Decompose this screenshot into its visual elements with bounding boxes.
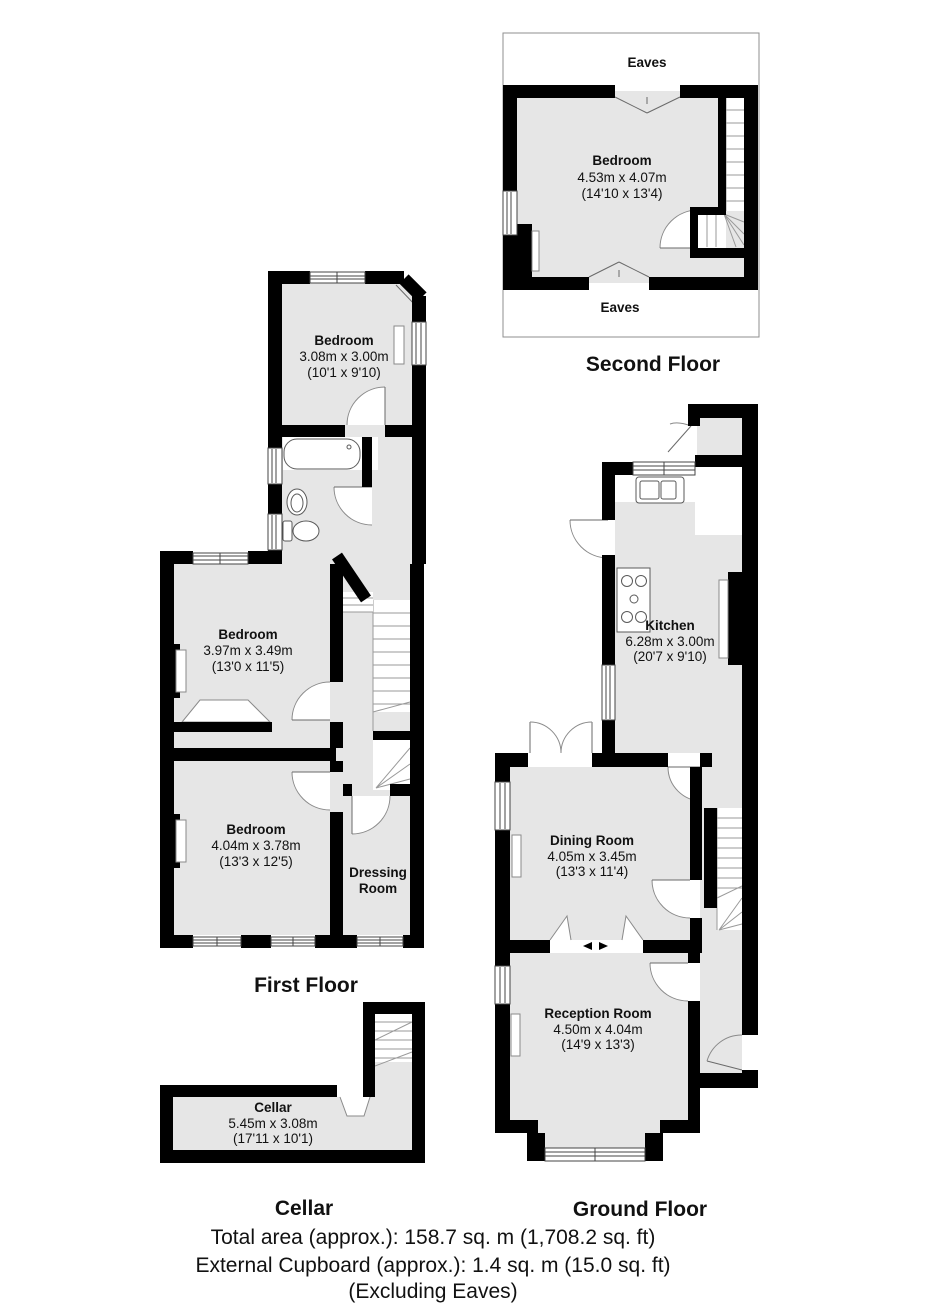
alcove-niche bbox=[394, 326, 404, 364]
wall bbox=[680, 85, 758, 98]
window bbox=[503, 191, 517, 235]
alcove-niche bbox=[176, 650, 186, 692]
hob-burner bbox=[630, 595, 638, 603]
wall bbox=[343, 784, 352, 796]
wall bbox=[728, 572, 742, 665]
room-label-bedroom-top: Bedroom bbox=[314, 333, 373, 348]
room-metric: 4.53m x 4.07m bbox=[577, 170, 666, 185]
room-imperial: (14'9 x 13'3) bbox=[561, 1037, 634, 1052]
sink-bowl bbox=[640, 481, 659, 499]
toilet-cistern bbox=[283, 521, 292, 541]
room-label-dressing-1: Dressing bbox=[349, 865, 407, 880]
wall bbox=[495, 753, 510, 940]
second-floor-plan: Eaves Eaves Bedroom 4.53m x 4.07m (14'10… bbox=[503, 33, 759, 376]
wall bbox=[315, 935, 357, 948]
wall bbox=[649, 277, 758, 290]
room-imperial: (13'3 x 11'4) bbox=[556, 864, 628, 879]
room-label-dressing-2: Room bbox=[359, 881, 397, 896]
sink-bowl bbox=[661, 481, 676, 499]
wall bbox=[700, 753, 712, 767]
external-cupboard-text: External Cupboard (approx.): 1.4 sq. m (… bbox=[195, 1254, 670, 1277]
cellar-plan: Cellar 5.45m x 3.08m (17'11 x 10'1) Cell… bbox=[160, 1002, 425, 1220]
floorplan-page: Eaves Eaves Bedroom 4.53m x 4.07m (14'10… bbox=[0, 0, 940, 1308]
wall bbox=[690, 918, 702, 940]
wall bbox=[503, 85, 517, 191]
hob-burner bbox=[636, 576, 647, 587]
window bbox=[495, 782, 510, 830]
stairwell bbox=[373, 600, 410, 712]
ground-floor-plan: Kitchen 6.28m x 3.00m (20'7 x 9'10) Dini… bbox=[495, 404, 758, 1221]
room-imperial: (10'1 x 9'10) bbox=[307, 365, 380, 380]
cellar-title: Cellar bbox=[275, 1197, 333, 1220]
wall bbox=[503, 277, 589, 290]
bath-tap bbox=[347, 445, 351, 449]
room-imperial: (17'11 x 10'1) bbox=[233, 1131, 313, 1146]
room-metric: 3.97m x 3.49m bbox=[203, 643, 292, 658]
wall bbox=[718, 97, 726, 215]
room-label-cellar: Cellar bbox=[254, 1100, 292, 1115]
room-metric: 4.05m x 3.45m bbox=[547, 849, 636, 864]
wall bbox=[385, 425, 412, 437]
french-door-arcs bbox=[530, 722, 592, 753]
wall bbox=[373, 731, 410, 740]
wall bbox=[160, 1085, 337, 1097]
room-label-dining: Dining Room bbox=[550, 833, 634, 848]
second-floor-title: Second Floor bbox=[586, 353, 720, 376]
stair-landing bbox=[698, 213, 726, 248]
stairwell bbox=[726, 97, 744, 211]
wall bbox=[527, 1133, 545, 1161]
wall bbox=[248, 551, 282, 564]
bay-floor bbox=[538, 1120, 660, 1148]
wall bbox=[643, 940, 702, 953]
door-swing bbox=[570, 520, 608, 558]
room-label-kitchen: Kitchen bbox=[645, 618, 695, 633]
porch-door-leaf bbox=[668, 426, 691, 452]
room-imperial: (14'10 x 13'4) bbox=[582, 186, 663, 201]
toilet bbox=[293, 521, 319, 541]
room-label-bedroom-middle: Bedroom bbox=[218, 627, 277, 642]
hob-burner bbox=[622, 576, 633, 587]
wall bbox=[160, 551, 174, 948]
first-floor-title: First Floor bbox=[254, 974, 358, 997]
wall bbox=[330, 722, 343, 748]
floorplan-drawing: Eaves Eaves Bedroom 4.53m x 4.07m (14'10… bbox=[0, 0, 940, 1308]
wall bbox=[645, 1133, 663, 1161]
wall bbox=[282, 425, 345, 437]
wall bbox=[704, 808, 717, 908]
wall bbox=[412, 296, 426, 322]
sink-basin bbox=[291, 494, 303, 512]
wall bbox=[602, 462, 615, 520]
alcove-niche bbox=[512, 835, 521, 877]
window bbox=[602, 665, 615, 720]
window bbox=[268, 514, 282, 550]
wall bbox=[690, 248, 758, 258]
wall bbox=[742, 418, 758, 1035]
bathtub bbox=[284, 439, 360, 469]
wall bbox=[241, 935, 271, 948]
footer-summary: Total area (approx.): 158.7 sq. m (1,708… bbox=[195, 1226, 670, 1303]
wall bbox=[688, 404, 700, 426]
wall bbox=[690, 767, 702, 880]
wall bbox=[690, 207, 698, 250]
total-area-text: Total area (approx.): 158.7 sq. m (1,708… bbox=[211, 1226, 656, 1249]
wall bbox=[412, 365, 426, 564]
eaves-label-bottom: Eaves bbox=[600, 300, 639, 315]
room-imperial: (20'7 x 9'10) bbox=[633, 649, 706, 664]
wall bbox=[330, 761, 343, 772]
ground-floor-title: Ground Floor bbox=[573, 1198, 707, 1221]
room-metric: 5.45m x 3.08m bbox=[228, 1116, 317, 1131]
wall bbox=[602, 555, 615, 665]
window bbox=[495, 966, 510, 1004]
wall bbox=[503, 85, 615, 98]
hob-burner bbox=[622, 612, 633, 623]
folding-door-arrows bbox=[583, 942, 608, 950]
wall bbox=[362, 437, 372, 487]
wall bbox=[660, 1120, 700, 1133]
alcove-niche bbox=[532, 231, 539, 271]
wall bbox=[390, 784, 410, 796]
wall bbox=[330, 812, 343, 935]
wall bbox=[365, 271, 404, 284]
window bbox=[412, 322, 426, 365]
eaves-label-top: Eaves bbox=[627, 55, 666, 70]
excluding-eaves-text: (Excluding Eaves) bbox=[348, 1280, 517, 1303]
wall bbox=[160, 935, 193, 948]
stairwell bbox=[717, 808, 742, 930]
window bbox=[268, 448, 282, 484]
stair-winders-box bbox=[373, 740, 410, 790]
wall bbox=[517, 224, 532, 277]
alcove-niche bbox=[511, 1014, 520, 1056]
room-imperial: (13'3 x 12'5) bbox=[219, 854, 292, 869]
wall bbox=[174, 748, 336, 761]
room-label-reception: Reception Room bbox=[544, 1006, 651, 1021]
alcove-niche bbox=[719, 580, 728, 658]
room-metric: 3.08m x 3.00m bbox=[299, 349, 388, 364]
wall bbox=[412, 1002, 425, 1163]
room-metric: 6.28m x 3.00m bbox=[625, 634, 714, 649]
wall bbox=[174, 722, 272, 732]
porch-door-arc bbox=[670, 423, 691, 426]
alcove-niche bbox=[176, 820, 186, 862]
stairwell bbox=[375, 1014, 412, 1062]
wall bbox=[410, 564, 424, 948]
wall bbox=[330, 564, 343, 682]
wall bbox=[363, 1002, 375, 1097]
wall bbox=[403, 935, 424, 948]
wall bbox=[688, 953, 700, 963]
room-label-bedroom2: Bedroom bbox=[592, 153, 651, 168]
room-metric: 4.50m x 4.04m bbox=[553, 1022, 642, 1037]
wall bbox=[160, 1150, 425, 1163]
front-door-opening bbox=[742, 1035, 758, 1070]
wall bbox=[688, 1001, 700, 1073]
porch-floor bbox=[697, 418, 742, 455]
wall bbox=[592, 753, 668, 767]
room-imperial: (13'0 x 11'5) bbox=[212, 659, 284, 674]
room-label-bedroom-bottom: Bedroom bbox=[226, 822, 285, 837]
wall bbox=[495, 1120, 538, 1133]
room-metric: 4.04m x 3.78m bbox=[211, 838, 300, 853]
first-floor-plan: Bedroom 3.08m x 3.00m (10'1 x 9'10) Bedr… bbox=[160, 271, 426, 997]
